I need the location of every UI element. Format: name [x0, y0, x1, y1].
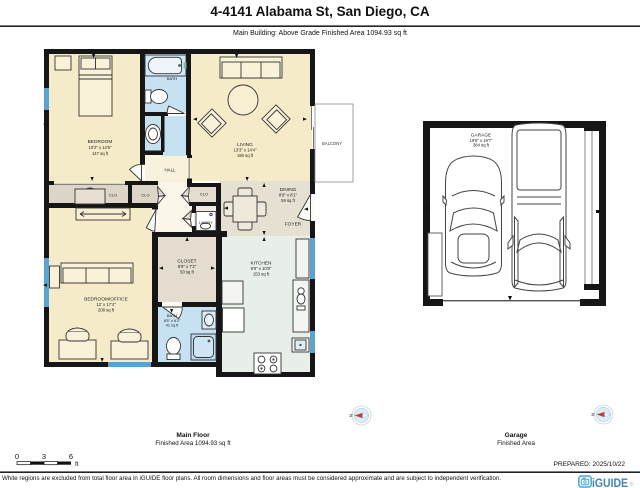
svg-text:ft: ft: [75, 461, 79, 468]
svg-text:CLO: CLO: [141, 193, 149, 198]
svg-text:N: N: [591, 413, 596, 416]
svg-text:10'2" x 14'5": 10'2" x 14'5": [89, 145, 112, 150]
svg-text:59 sq ft: 59 sq ft: [281, 198, 296, 203]
svg-text:Garage: Garage: [505, 432, 528, 439]
svg-text:8'9" x 7'2": 8'9" x 7'2": [178, 264, 197, 269]
svg-text:384 sq ft: 384 sq ft: [473, 143, 490, 148]
svg-text:HALL: HALL: [165, 168, 177, 173]
svg-text:8'9" x 10'8": 8'9" x 10'8": [251, 266, 272, 271]
svg-text:CLO: CLO: [200, 192, 208, 197]
svg-text:CLO: CLO: [109, 193, 117, 198]
svg-text:13'3" x 14'4": 13'3" x 14'4": [234, 148, 257, 153]
svg-text:6: 6: [69, 452, 73, 461]
svg-text:4-4141 Alabama St, San Diego,: 4-4141 Alabama St, San Diego, CA: [210, 4, 430, 19]
svg-text:Main Building: Above Grade Fin: Main Building: Above Grade Finished Area…: [233, 30, 407, 37]
svg-text:Finished Area: Finished Area: [497, 440, 535, 447]
svg-text:Main Floor: Main Floor: [176, 432, 210, 439]
svg-text:BALCONY: BALCONY: [322, 141, 342, 146]
svg-text:iGUIDE: iGUIDE: [592, 476, 628, 488]
svg-text:6'5" x 6'2": 6'5" x 6'2": [164, 319, 181, 323]
svg-text:FOYER: FOYER: [285, 221, 302, 227]
svg-text:White regions are excluded fro: White regions are excluded from total fl…: [2, 475, 501, 482]
svg-text:41 sq ft: 41 sq ft: [166, 323, 179, 327]
svg-text:8'9" x 8'1": 8'9" x 8'1": [279, 193, 298, 198]
svg-text:3: 3: [42, 452, 46, 461]
svg-text:153 sq ft: 153 sq ft: [253, 272, 270, 277]
svg-text:208 sq ft: 208 sq ft: [98, 308, 115, 313]
svg-text:50 sq ft: 50 sq ft: [180, 270, 195, 275]
svg-text:®: ®: [630, 481, 634, 488]
svg-text:N: N: [349, 414, 354, 417]
svg-text:Finished Area 1094.93 sq ft: Finished Area 1094.93 sq ft: [155, 440, 231, 447]
svg-text:BATH: BATH: [167, 313, 177, 318]
svg-text:0: 0: [15, 452, 19, 461]
svg-text:190 sq ft: 190 sq ft: [237, 153, 254, 158]
svg-text:147 sq ft: 147 sq ft: [92, 151, 109, 156]
svg-text:LNDRY: LNDRY: [199, 220, 213, 225]
svg-text:PREPARED: 2025/10/22: PREPARED: 2025/10/22: [554, 461, 626, 468]
svg-text:BATH: BATH: [167, 76, 177, 81]
svg-text:12' x 17'4": 12' x 17'4": [96, 302, 116, 307]
